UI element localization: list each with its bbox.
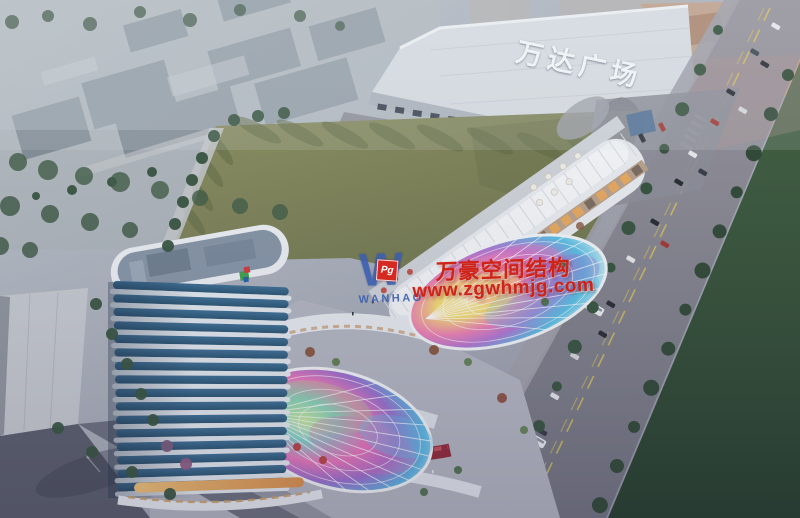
tree — [208, 130, 220, 142]
tree — [183, 13, 197, 27]
tree — [675, 102, 689, 116]
tree — [533, 420, 545, 432]
watermark: W Pg WANHAO 万豪空间结构 www.zgwhmjg.com — [351, 242, 593, 316]
watermark-logo-monogram-badge: Pg — [376, 259, 398, 281]
tree — [106, 328, 118, 340]
tree — [713, 224, 727, 238]
tree — [497, 393, 507, 403]
tree — [520, 426, 528, 434]
tree — [42, 10, 54, 22]
tree — [764, 107, 778, 121]
tree — [610, 459, 624, 473]
tree — [694, 64, 706, 76]
tree — [180, 458, 192, 470]
tree — [186, 174, 198, 186]
aerial-rendering: 万达广场 W Pg WANHAO 万豪空间结构 www.zgwhmjg.com — [0, 0, 800, 518]
tree — [86, 446, 98, 458]
tree — [38, 160, 58, 180]
tree — [151, 181, 169, 199]
tree — [622, 221, 636, 235]
tree — [552, 381, 562, 391]
tree — [252, 110, 264, 122]
tree — [192, 190, 208, 206]
tree — [126, 466, 138, 478]
tree — [640, 182, 652, 194]
tree — [679, 304, 691, 316]
tree — [695, 263, 711, 279]
tree — [9, 153, 27, 171]
tree — [52, 422, 64, 434]
tree — [576, 222, 584, 230]
tree — [41, 205, 59, 223]
tree — [67, 185, 77, 195]
tree — [746, 145, 762, 161]
tree — [429, 345, 439, 355]
watermark-monogram-text: Pg — [380, 265, 394, 277]
tree — [32, 192, 40, 200]
tree — [22, 242, 38, 258]
tree — [169, 218, 181, 230]
tree — [454, 466, 462, 474]
tree — [162, 240, 174, 252]
tree — [147, 167, 157, 177]
tree — [196, 152, 208, 164]
tree — [294, 10, 306, 22]
tree — [713, 25, 723, 35]
tree — [75, 167, 93, 185]
tree — [659, 144, 669, 154]
tree — [5, 15, 19, 29]
tree — [232, 198, 248, 214]
tree — [228, 114, 240, 126]
tree — [161, 440, 173, 452]
pedestrian — [432, 470, 434, 473]
tree — [464, 358, 472, 366]
tree — [305, 347, 315, 357]
warehouse — [0, 288, 88, 436]
tree — [234, 4, 246, 16]
tree — [335, 21, 345, 31]
tree — [782, 69, 794, 81]
tree — [628, 421, 640, 433]
tree — [0, 196, 20, 216]
tree — [135, 388, 147, 400]
tree — [121, 358, 133, 370]
tree — [90, 298, 102, 310]
tree — [332, 358, 340, 366]
tree — [177, 196, 189, 208]
tree — [134, 6, 146, 18]
tree — [420, 488, 428, 496]
tree — [81, 213, 99, 231]
tree — [83, 17, 97, 31]
tree — [110, 172, 130, 192]
tree — [592, 497, 608, 513]
tree — [568, 340, 582, 354]
tree — [147, 414, 159, 426]
tree — [643, 380, 659, 396]
tree — [122, 222, 138, 238]
tower-side-shade — [108, 282, 298, 498]
tree — [661, 342, 675, 356]
tree — [278, 107, 290, 119]
tree — [164, 488, 176, 500]
tree — [272, 204, 288, 220]
tree — [731, 186, 743, 198]
